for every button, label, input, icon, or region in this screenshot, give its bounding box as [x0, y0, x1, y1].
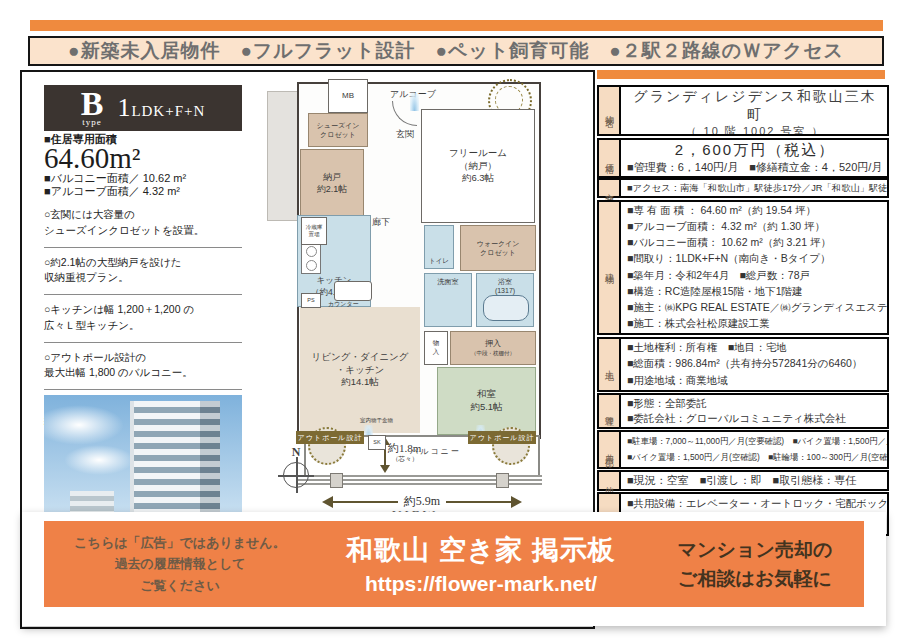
stove-icon	[301, 242, 321, 274]
plan-type: 1LDK+F+N	[117, 93, 205, 123]
spec-row: ■駐車場：7,000～11,000円／月(空要確認) ■バイク置場：1,500円…	[627, 436, 883, 447]
room-bath: 浴室 (1317)	[476, 273, 534, 327]
section-subtitle: （ 10 階 1002 号室 ）	[627, 124, 883, 134]
section-common-area: 共用部■駐車場：7,000～11,000円／月(空要確認) ■バイク置場：1,5…	[597, 430, 889, 469]
room-free-room: フリールーム （納戸） 約6.3帖	[421, 109, 535, 223]
room-storage: 納戸 約2.1帖	[300, 149, 364, 217]
type-letter: Btype	[81, 90, 104, 126]
room-washroom: 洗面室	[424, 273, 472, 327]
room-wic: ウォークイン クロゼット	[460, 225, 536, 271]
section-body: グランディレジデンス和歌山三木町（ 10 階 1002 号室 ）■所在地：和歌山…	[621, 87, 887, 134]
spec-row: ■用途地域：商業地域	[627, 374, 883, 388]
footer-card: こちらは「広告」ではありません。 過去の履歴情報として ご覧ください 和歌山 空…	[22, 512, 886, 626]
outpole-label-left: アウトポール設計	[296, 431, 364, 444]
spec-row: ■間取り：1LDK+F+N（南向き・Bタイプ）	[627, 252, 883, 266]
section-body: ■土地権利：所有権 ■地目：宅地■総面積：986.84m²（共有持分572841…	[621, 339, 887, 390]
section-label: 建物	[599, 202, 621, 333]
spec-row: ■形態：全部委託	[627, 397, 883, 411]
section-label: 管理	[599, 395, 621, 427]
section-title: グランディレジデンス和歌山三木町	[627, 88, 883, 124]
spec-row: ■施工：株式会社松原建設工業	[627, 317, 883, 331]
floorplan: MB アルコーブ 玄関 シューズイン クロゼット 納戸 約2.1帖 フリールーム…	[264, 77, 592, 529]
fridge-space: 冷蔵庫 置場	[301, 217, 327, 245]
room-ldk: リビング・ダイニング ・キッチン 約14.1帖	[300, 307, 420, 433]
room-shoes-closet: シューズイン クロゼット	[308, 113, 368, 147]
spec-row: ■土地権利：所有権 ■地目：宅地	[627, 341, 883, 355]
spec-row: ■築年月：令和2年4月 ■総戸数：78戸	[627, 269, 883, 283]
spec-row: ■アクセス：南海「和歌山市」駅徒歩17分／JR「和歌山」駅徒歩18分	[627, 182, 883, 195]
section-label: 物件名	[599, 87, 621, 134]
bathtub-icon	[483, 295, 529, 321]
spec-row: ■バイク置場：1,500円／月(空確認) ■駐輪場：100～300円／月(空確認…	[627, 452, 883, 463]
section-management: 管理■形態：全部委託■委託会社：グローバルコミュニティ株式会社	[597, 393, 889, 429]
section-label: 交通	[599, 180, 621, 196]
footer-brand: 和歌山 空き家 掲示板 https://flower-mark.net/	[316, 532, 646, 596]
spec-row: ■共用設備：エレベーター・オートロック・宅配ボックス	[627, 497, 883, 511]
footer-banner: こちらは「広告」ではありません。 過去の履歴情報として ご覧ください 和歌山 空…	[44, 521, 864, 607]
feature-item: ○キッチンは幅 1,200＋1,200 の 広々Ｌ型キッチン。	[44, 295, 242, 343]
hallway-label: 廊下	[372, 217, 390, 229]
room-mb: MB	[328, 79, 368, 113]
headline-text: ●新築未入居物件 ●フルフラット設計 ●ペット飼育可能 ●２駅２路線のＷアクセス	[68, 38, 844, 64]
feature-item: ○玄関には大容量の シューズインクロゼットを設置。	[44, 200, 242, 248]
ps-box: PS	[301, 293, 321, 308]
alcove-area-line: ■アルコーブ面積／ 4.32 m²	[44, 184, 180, 199]
compass-icon: N	[276, 445, 316, 488]
spec-column: 物件名グランディレジデンス和歌山三木町（ 10 階 1002 号室 ）■所在地：…	[597, 70, 885, 540]
spec-row: ■バルコニー面積： 10.62 m²（約 3.21 坪）	[627, 236, 883, 250]
section-label: 土地	[599, 339, 621, 390]
section-body: ■専 有 面 積 ： 64.60 m²（約 19.54 坪）■アルコーブ面積： …	[621, 202, 887, 333]
spec-row: ■現況：空室 ■引渡し：即 ■取引態様：専任	[627, 473, 883, 488]
section-building: 建物■専 有 面 積 ： 64.60 m²（約 19.54 坪）■アルコーブ面積…	[597, 200, 889, 335]
section-title: 2，600万円（税込）	[627, 141, 883, 160]
section-body: ■形態：全部委託■委託会社：グローバルコミュニティ株式会社	[621, 395, 887, 427]
spec-row: ■専 有 面 積 ： 64.60 m²（約 19.54 坪）	[627, 204, 883, 218]
site-url: https://flower-mark.net/	[316, 572, 646, 596]
spec-row: ■施主：㈱KPG REAL ESTATE／㈱グランディスエステート	[627, 301, 883, 315]
balcony-post	[496, 473, 509, 488]
section-body: ■アクセス：南海「和歌山市」駅徒歩17分／JR「和歌山」駅徒歩18分	[621, 180, 887, 196]
site-title: 和歌山 空き家 掲示板	[316, 532, 646, 568]
room-toilet: トイレ	[424, 225, 454, 269]
outpole-label-right: アウトポール設計	[468, 431, 536, 444]
unit-type-badge: Btype 1LDK+F+N	[44, 85, 242, 131]
feature-item: ○アウトポール設計の 最大出幅 1,800 のバルコニー。	[44, 343, 242, 391]
entrance-label: 玄関	[396, 129, 414, 141]
counter-label: カウンター	[328, 301, 359, 309]
spec-row: ■構造：RC造陸屋根15階・地下1階建	[627, 285, 883, 299]
section-other: 他■現況：空室 ■引渡し：即 ■取引態様：専任	[597, 470, 889, 491]
section-label: 他	[599, 472, 621, 489]
laundry-label: 室内物干金物	[360, 417, 393, 424]
section-access: 交通■アクセス：南海「和歌山市」駅徒歩17分／JR「和歌山」駅徒歩18分	[597, 178, 889, 198]
balcony-post	[330, 473, 343, 488]
section-land: 土地■土地権利：所有権 ■地目：宅地■総面積：986.84m²（共有持分5728…	[597, 337, 889, 392]
spec-orange-strip	[597, 70, 885, 79]
section-label: 価格	[599, 140, 621, 176]
feature-item: ○約2.1帖の大型納戸を設けた 収納重視プラン。	[44, 248, 242, 296]
spec-row: ■アルコーブ面積： 4.32 m²（約 1.30 坪）	[627, 220, 883, 234]
room-oshiire: 押入 （中段・枕棚付）	[450, 331, 536, 365]
spec-row: ■管理費：6，140円/月 ■修繕積立金：4，520円/月	[627, 160, 883, 175]
section-body: 2，600万円（税込）■管理費：6，140円/月 ■修繕積立金：4，520円/月	[621, 140, 887, 176]
top-orange-strip	[30, 20, 883, 31]
counter-icon	[334, 281, 372, 301]
depth-sub-label: （芯々）	[392, 455, 418, 463]
section-label: 共用部	[599, 432, 621, 467]
spec-row: ■総面積：986.84m²（共有持分572841分の6460）	[627, 357, 883, 371]
spec-row: ■委託会社：グローバルコミュニティ株式会社	[627, 412, 883, 426]
exterior-corridor	[267, 91, 299, 221]
section-body: ■現況：空室 ■引渡し：即 ■取引態様：専任	[621, 472, 887, 489]
section-body: ■駐車場：7,000～11,000円／月(空要確認) ■バイク置場：1,500円…	[621, 432, 887, 467]
footer-disclaimer: こちらは「広告」ではありません。 過去の履歴情報として ご覧ください	[44, 532, 316, 596]
sk-box: SK	[368, 435, 386, 450]
room-washitsu: 和室 約5.1帖	[437, 367, 536, 435]
section-property-name: 物件名グランディレジデンス和歌山三木町（ 10 階 1002 号室 ）■所在地：…	[597, 85, 889, 136]
headline-banner: ●新築未入居物件 ●フルフラット設計 ●ペット飼育可能 ●２駅２路線のＷアクセス	[28, 36, 884, 66]
depth-label: 約1.8m	[388, 441, 421, 455]
footer-cta: マンション売却の ご相談はお気軽に	[646, 535, 864, 594]
section-price: 価格2，600万円（税込）■管理費：6，140円/月 ■修繕積立金：4，520円…	[597, 138, 889, 178]
room-storage-small: 物 入	[424, 331, 448, 365]
oshiire-sub-label: （中段・枕棚付）	[471, 350, 515, 357]
